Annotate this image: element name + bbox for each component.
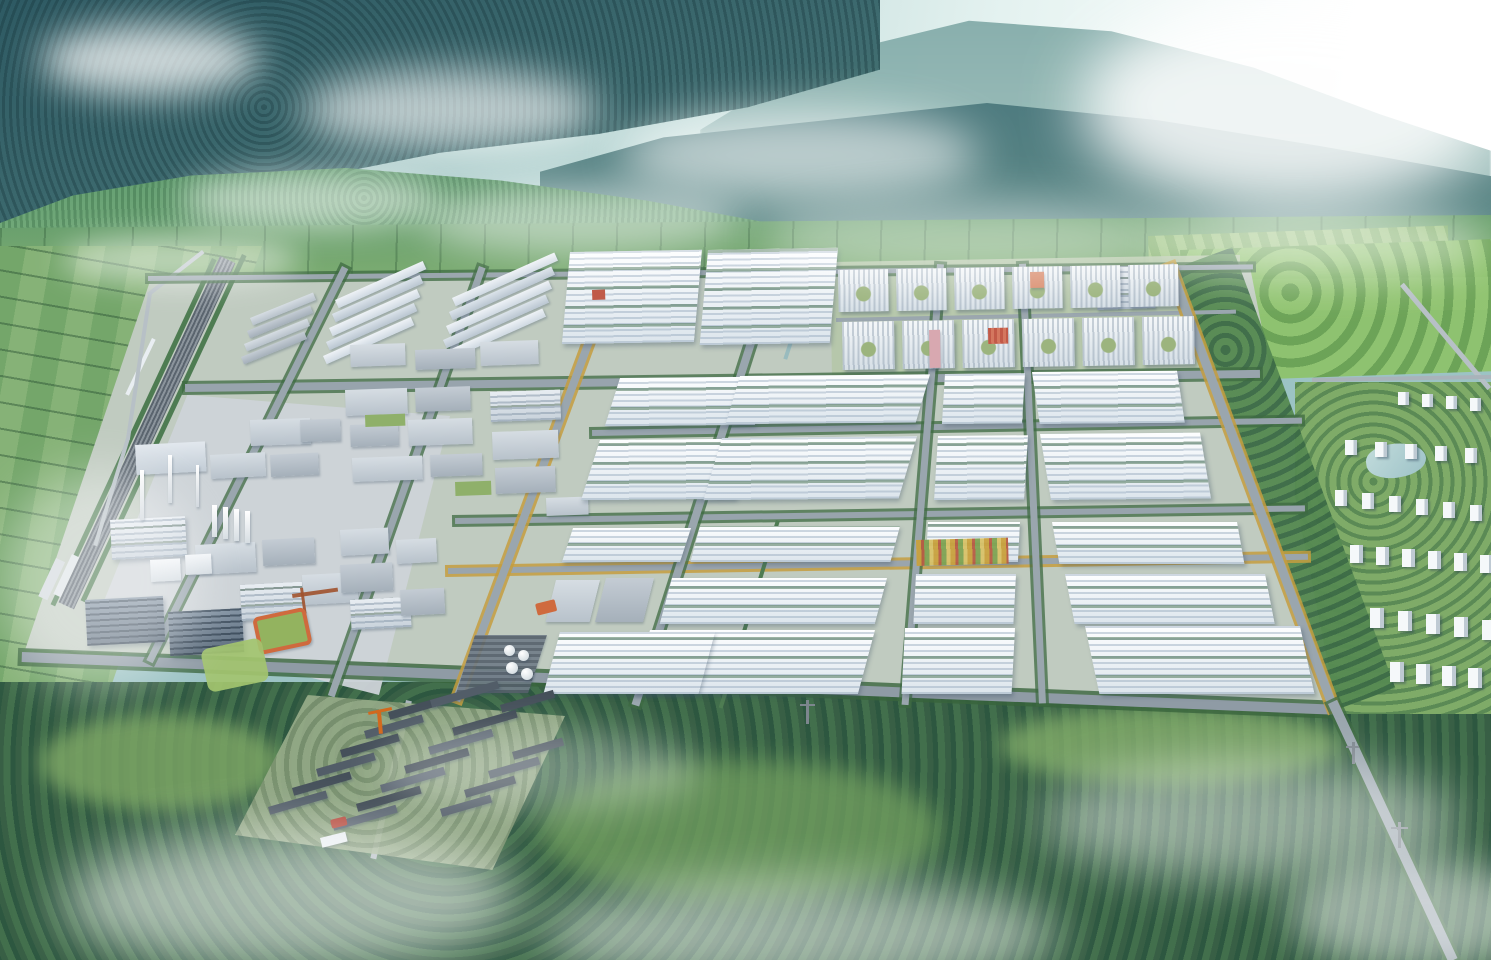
warehouse-cell xyxy=(1085,626,1314,694)
warehouse-cell xyxy=(543,632,715,694)
residential-towers xyxy=(1335,490,1347,506)
chimney xyxy=(168,455,172,503)
residential-towers xyxy=(1422,394,1433,407)
residential-towers xyxy=(1482,620,1491,640)
residential-towers xyxy=(1428,551,1441,569)
accent-red-roof xyxy=(592,290,605,300)
factory-block xyxy=(408,418,473,446)
pylon-arm xyxy=(800,704,815,706)
storage-tank xyxy=(521,668,533,680)
mist xyxy=(180,170,440,230)
residential-towers xyxy=(1443,502,1455,518)
residential-towers xyxy=(1468,668,1482,688)
warehouse-cell xyxy=(942,373,1025,424)
residential-towers xyxy=(1398,392,1409,405)
residential-towers xyxy=(1375,442,1387,457)
office-cluster-row1 xyxy=(1128,264,1179,307)
office-cluster-row2 xyxy=(842,321,895,370)
factory-block xyxy=(350,423,399,447)
factory-block xyxy=(495,466,556,494)
residential-towers xyxy=(1390,662,1404,682)
factory-block xyxy=(352,456,423,482)
residential-towers xyxy=(1454,617,1468,637)
residential-towers xyxy=(1362,493,1374,509)
factory-block xyxy=(430,453,483,477)
warehouse-cell xyxy=(726,374,930,424)
storage-tank xyxy=(518,650,529,661)
factory-block xyxy=(415,386,471,412)
residential-towers xyxy=(1405,444,1417,459)
storage-tank xyxy=(504,645,515,656)
green-patch xyxy=(455,481,491,496)
warehouse-cell xyxy=(562,528,691,562)
office-cluster-row2 xyxy=(1022,318,1075,367)
factory-block xyxy=(340,562,393,593)
residential-towers xyxy=(1370,608,1384,628)
mist xyxy=(40,25,260,95)
office-cluster-row2 xyxy=(1082,317,1135,366)
factory-block xyxy=(400,588,445,616)
campus-red-court xyxy=(988,328,1008,344)
residential-towers xyxy=(1470,398,1481,411)
plant-block xyxy=(270,452,319,476)
factory-block xyxy=(345,388,408,416)
distillation-towers xyxy=(234,509,239,541)
residential-towers xyxy=(1454,553,1467,571)
warehouse-cell xyxy=(902,628,1015,694)
green-patch xyxy=(365,414,405,427)
industrial-park-render: Aerial 3D architectural rendering of a p… xyxy=(0,0,1491,960)
factory-block xyxy=(480,340,539,366)
plant-block xyxy=(300,419,341,442)
residential-towers xyxy=(1446,396,1457,409)
mist xyxy=(380,730,700,810)
mist xyxy=(0,470,200,690)
warehouse-cell xyxy=(934,435,1028,500)
factory-block xyxy=(340,527,389,555)
factory-block xyxy=(396,538,437,564)
distillation-towers xyxy=(212,505,217,537)
mist xyxy=(1150,210,1490,280)
residential-towers xyxy=(1398,611,1412,631)
residential-towers xyxy=(1416,499,1428,515)
residential-towers xyxy=(1345,440,1357,455)
mist xyxy=(620,110,980,200)
residential-towers xyxy=(1376,547,1389,565)
residential-towers xyxy=(1402,549,1415,567)
residential-towers xyxy=(1435,446,1447,461)
big-hall-north-1 xyxy=(562,250,702,344)
chimney xyxy=(196,465,199,507)
mist xyxy=(60,235,300,285)
warehouse-cell xyxy=(704,436,917,500)
residential-towers xyxy=(1465,448,1477,463)
plant-hall xyxy=(262,537,315,566)
residential-towers xyxy=(1416,664,1430,684)
mist-bright-haze xyxy=(1080,0,1491,210)
distillation-towers xyxy=(223,507,228,539)
forest-clearing-left xyxy=(40,715,280,810)
factory-block xyxy=(492,430,559,460)
distillation-towers xyxy=(245,511,250,543)
residential-towers xyxy=(1442,666,1456,686)
mist xyxy=(760,200,1180,280)
residential-towers xyxy=(1426,614,1440,634)
factory-block xyxy=(350,343,406,367)
office-cluster-row2 xyxy=(1142,316,1195,365)
mist xyxy=(60,830,520,960)
warehouse-cell xyxy=(1052,522,1244,564)
residential-towers xyxy=(1470,505,1482,521)
plant-block xyxy=(210,452,266,479)
warehouse-cell xyxy=(1065,574,1275,624)
residential-towers xyxy=(1350,545,1363,563)
warehouse-cell xyxy=(1040,433,1211,500)
warehouse-cell xyxy=(1032,371,1185,424)
residential-towers xyxy=(1389,496,1401,512)
warehouse-cell xyxy=(913,574,1016,624)
storage-tank xyxy=(506,662,518,674)
mist xyxy=(420,185,740,255)
flower-garden xyxy=(916,538,1009,566)
factory-block xyxy=(415,348,476,370)
warehouse-cell xyxy=(660,578,887,624)
mist xyxy=(300,70,600,150)
factory-block xyxy=(490,390,561,422)
accent-pink-building xyxy=(929,330,941,368)
warehouse-cell xyxy=(690,526,900,562)
residential-towers xyxy=(1480,555,1491,573)
pylon-arm xyxy=(1346,746,1359,748)
